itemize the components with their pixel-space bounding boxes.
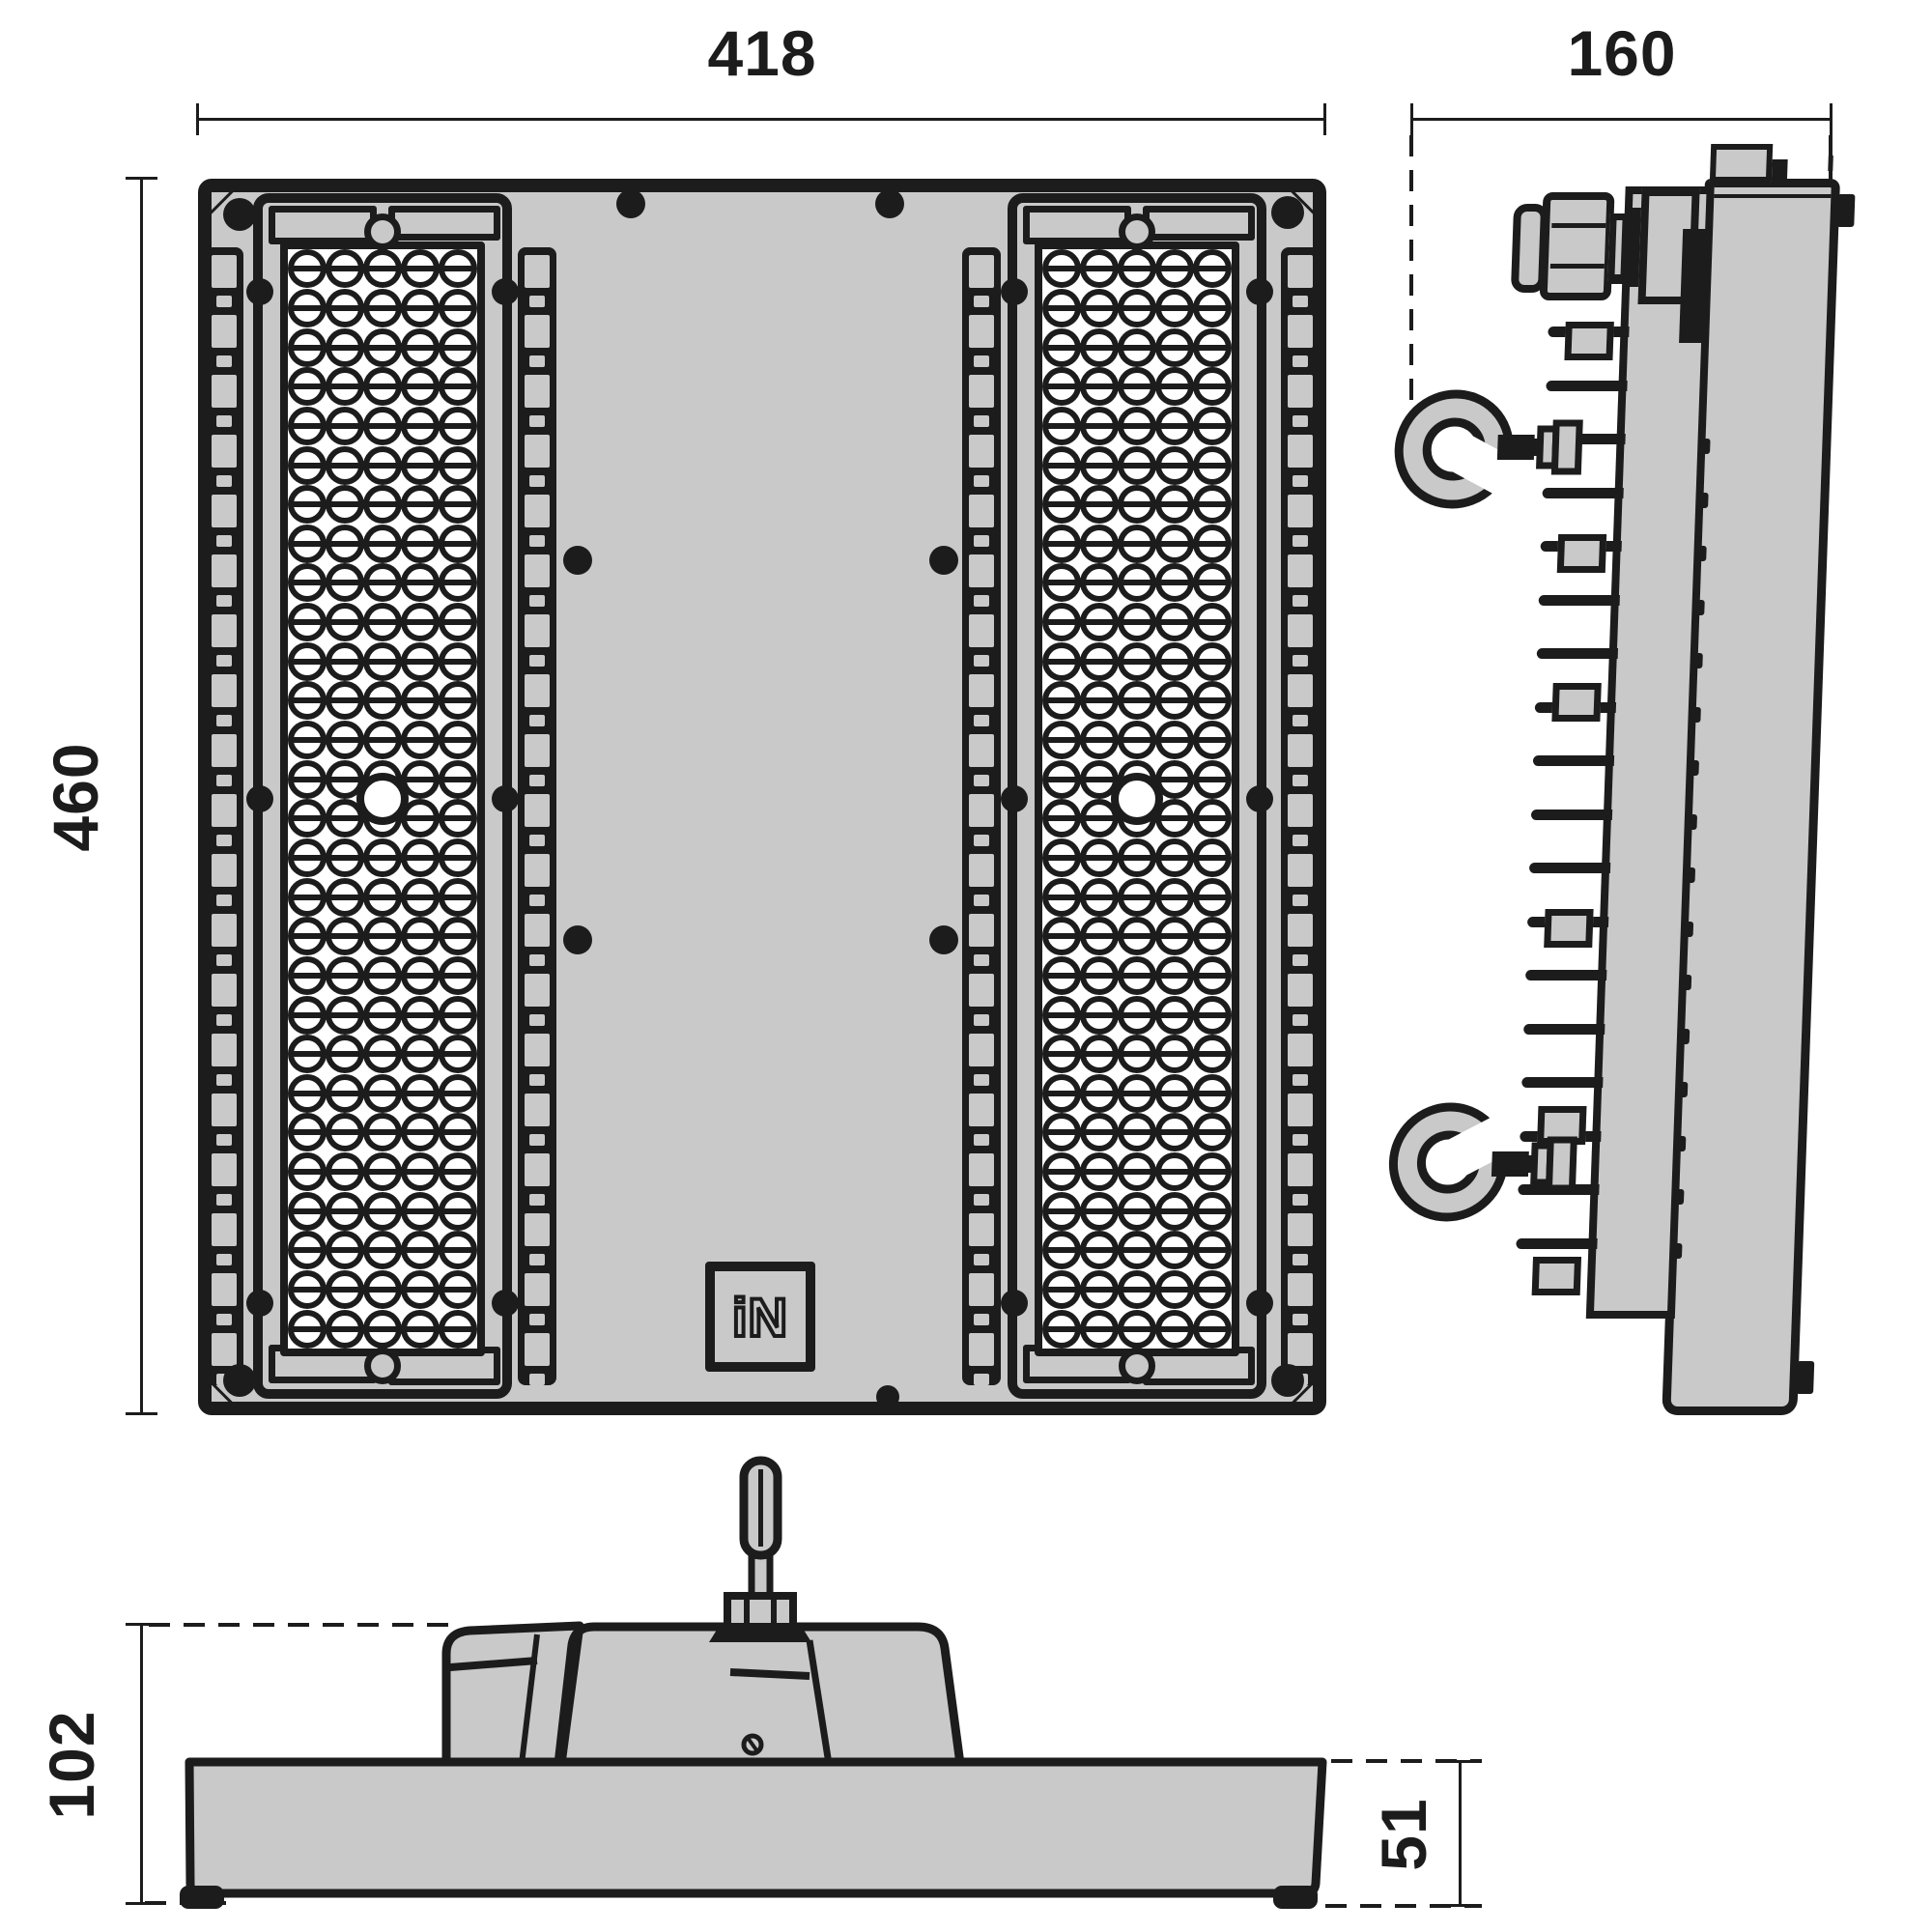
led-lens (288, 525, 327, 563)
rail-clamp-segment (1293, 1254, 1308, 1265)
heatsink-fin (1523, 1024, 1605, 1035)
led-lens-bar (1046, 463, 1077, 469)
led-lens-bar (1159, 973, 1190, 979)
led-lens (288, 1270, 327, 1309)
rail-clamp-segment (525, 854, 550, 887)
rail-clamp-segment (525, 794, 550, 827)
led-lens (1042, 1035, 1081, 1073)
rail-clamp-segment (212, 1034, 237, 1066)
rail-clamp-segment (969, 1034, 994, 1066)
slab-edge-mark (1678, 1029, 1690, 1044)
rail-clamp-segment (1293, 1314, 1308, 1325)
led-lens (288, 917, 327, 955)
led-lens-bar (292, 1169, 323, 1175)
led-lens-bar (1084, 1051, 1115, 1057)
led-lens-bar (405, 659, 436, 665)
led-lens (1080, 328, 1119, 367)
led-lens (1080, 407, 1119, 445)
led-lens-bar (405, 384, 436, 389)
led-lens-bar (1046, 1326, 1077, 1332)
led-lens-bar (1197, 580, 1228, 585)
rail-clamp-segment (974, 1194, 989, 1206)
dim-tick (196, 103, 199, 135)
led-lens-bar (1046, 345, 1077, 351)
led-lens (288, 1231, 327, 1269)
led-lens-bar (442, 697, 473, 703)
led-lens (326, 328, 364, 367)
led-lens (1155, 838, 1194, 877)
led-lens (1118, 1270, 1156, 1309)
led-lens (401, 721, 440, 759)
led-lens-bar (442, 659, 473, 665)
led-lens-bar (1159, 345, 1190, 351)
module-hole (1119, 1348, 1155, 1384)
led-lens-bar (367, 973, 398, 979)
led-lens (1118, 289, 1156, 327)
led-lens (1118, 328, 1156, 367)
led-lens (1080, 996, 1119, 1035)
led-lens-bar (442, 345, 473, 351)
dim-tick (126, 177, 157, 180)
led-lens-bar (1197, 1287, 1228, 1293)
rail-clamp-segment (969, 1333, 994, 1366)
slab-edge-mark (1692, 600, 1705, 615)
dim-line-bottom-body-height (1459, 1762, 1462, 1907)
led-lens-bar (1159, 1129, 1190, 1135)
rail-clamp-segment (1293, 895, 1308, 906)
led-lens (363, 1310, 402, 1349)
led-lens (1042, 642, 1081, 681)
slab-top-rim (1713, 194, 1831, 198)
rail-clamp-segment (525, 1273, 550, 1306)
led-lens-bar (1197, 855, 1228, 861)
led-lens-bar (329, 463, 360, 469)
led-lens-bar (1122, 697, 1152, 703)
led-lens-bar (367, 580, 398, 585)
rail-clamp-segment (525, 1153, 550, 1186)
led-lens-bar (442, 815, 473, 821)
led-lens-bar (405, 855, 436, 861)
led-lens (1155, 1310, 1194, 1349)
led-lens (1080, 446, 1119, 485)
rail-clamp-segment (1288, 255, 1313, 288)
led-lens (1118, 1192, 1156, 1231)
led-lens (1042, 917, 1081, 955)
rail-clamp-segment (525, 734, 550, 767)
led-lens-bar (367, 1287, 398, 1293)
rail-clamp-segment (1288, 554, 1313, 587)
led-lens (363, 446, 402, 485)
rail-clamp-segment (216, 1254, 232, 1265)
led-lens-bar (442, 1287, 473, 1293)
led-lens (1118, 838, 1156, 877)
led-lens (1118, 1152, 1156, 1191)
led-lens (288, 603, 327, 641)
led-lens (326, 603, 364, 641)
heatsink-bolt-block (1551, 683, 1601, 722)
led-lens-bar (1046, 1051, 1077, 1057)
led-lens-bar (1122, 1287, 1152, 1293)
led-lens-bar (1046, 1091, 1077, 1096)
rail-clamp-segment (212, 974, 237, 1007)
led-lens-bar (292, 855, 323, 861)
led-lens-bar (1159, 697, 1190, 703)
rail-clamp-segment (974, 296, 989, 307)
led-lens-bar (329, 384, 360, 389)
led-lens (326, 1231, 364, 1269)
rail-clamp-segment (212, 614, 237, 647)
dim-line-front-height (140, 179, 143, 1415)
led-lens-bar (367, 1129, 398, 1135)
led-lens-bar (1084, 933, 1115, 939)
led-lens (1080, 642, 1119, 681)
rail-clamp-segment (974, 1374, 989, 1385)
rail-clamp-segment (216, 954, 232, 966)
led-lens-bar (1197, 1247, 1228, 1253)
rail-clamp-segment (212, 734, 237, 767)
led-lens (326, 1310, 364, 1349)
led-lens-bar (1197, 697, 1228, 703)
led-lens-bar (1122, 855, 1152, 861)
rail-clamp-segment (1288, 495, 1313, 527)
rail-clamp-segment (974, 1014, 989, 1026)
led-lens-bar (405, 1051, 436, 1057)
rail-clamp-segment (212, 1273, 237, 1306)
led-lens-bar (1046, 501, 1077, 507)
led-lens-bar (367, 384, 398, 389)
led-lens (1155, 1270, 1194, 1309)
led-lens-bar (292, 659, 323, 665)
led-lens (1042, 760, 1081, 799)
rail-clamp-segment (1288, 1034, 1313, 1066)
led-lens-bar (1046, 737, 1077, 743)
rail-clamp-segment (974, 535, 989, 547)
led-lens-bar (442, 973, 473, 979)
led-lens-bar (442, 501, 473, 507)
rail-clamp-segment (216, 895, 232, 906)
cable-gland-nut (1540, 192, 1615, 300)
led-lens-bar (1084, 855, 1115, 861)
led-lens-bar (292, 580, 323, 585)
led-lens (1118, 996, 1156, 1035)
led-lens (363, 367, 402, 406)
led-lens-bar (1197, 1012, 1228, 1018)
rail-clamp-segment (216, 1134, 232, 1146)
led-lens-bar (367, 1326, 398, 1332)
led-lens-bar (292, 305, 323, 311)
led-lens (1193, 1310, 1232, 1349)
led-lens-bar (292, 1287, 323, 1293)
led-lens-bar (1122, 1129, 1152, 1135)
led-lens (326, 1270, 364, 1309)
led-lens-bar (442, 266, 473, 271)
rail-clamp-segment (969, 495, 994, 527)
led-lens-bar (442, 580, 473, 585)
led-lens (1042, 367, 1081, 406)
led-lens-bar (405, 1169, 436, 1175)
rail-clamp-segment (212, 435, 237, 468)
led-lens-bar (1046, 1169, 1077, 1175)
led-lens (1155, 603, 1194, 641)
dim-tick (1323, 103, 1326, 135)
led-lens (1042, 1310, 1081, 1349)
led-lens (1118, 446, 1156, 485)
led-lens (326, 642, 364, 681)
led-lens-bar (442, 855, 473, 861)
housing-screw (563, 925, 592, 954)
heatsink-fin (1525, 970, 1606, 980)
in-logo-text: iN (732, 1286, 788, 1349)
led-lens (439, 328, 477, 367)
slab-edge-mark (1687, 760, 1699, 776)
led-lens-bar (292, 619, 323, 625)
led-lens (1193, 328, 1232, 367)
led-lens-bar (1197, 659, 1228, 665)
rail-clamp-segment (525, 495, 550, 527)
led-lens-bar (329, 541, 360, 547)
rail-clamp-segment (212, 1333, 237, 1366)
led-lens-bar (1046, 1129, 1077, 1135)
led-lens-bar (1084, 1169, 1115, 1175)
led-lens (326, 917, 364, 955)
led-lens-bar (329, 1287, 360, 1293)
led-lens-bar (1197, 501, 1228, 507)
led-lens (326, 956, 364, 995)
led-lens-bar (1159, 541, 1190, 547)
led-lens (363, 1035, 402, 1073)
led-lens-bar (1122, 1208, 1152, 1214)
led-lens-bar (367, 463, 398, 469)
rail-clamp-segment (974, 655, 989, 667)
rail-clamp-segment (216, 1074, 232, 1086)
led-lens (401, 407, 440, 445)
mounting-bracket (446, 1626, 960, 1764)
led-lens-bar (405, 697, 436, 703)
led-lens (1155, 1074, 1194, 1113)
rail-clamp-segment (529, 1194, 545, 1206)
led-lens (288, 1074, 327, 1113)
led-lens-bar (442, 619, 473, 625)
rail-clamp-segment (529, 1074, 545, 1086)
led-lens (1042, 603, 1081, 641)
led-lens-bar (1197, 541, 1228, 547)
led-lens-bar (405, 619, 436, 625)
led-lens (1193, 1074, 1232, 1113)
led-lens (1193, 878, 1232, 917)
dim-line-front-width (198, 118, 1326, 121)
led-lens (401, 289, 440, 327)
led-lens-bar (442, 1129, 473, 1135)
cable-gland-facet (1551, 223, 1605, 228)
rail-clamp-segment (525, 554, 550, 587)
led-lens (1118, 642, 1156, 681)
led-lens-bar (329, 697, 360, 703)
led-lens (439, 525, 477, 563)
rail-clamp-segment (529, 715, 545, 726)
dim-label-side-depth: 160 (1567, 21, 1676, 85)
rail-clamp-segment (969, 1094, 994, 1126)
led-lens-bar (1197, 895, 1228, 900)
led-lens-bar (367, 659, 398, 665)
led-lens (326, 407, 364, 445)
clamp-rail (205, 247, 243, 1385)
rail-clamp-segment (212, 674, 237, 707)
led-lens-bar (367, 345, 398, 351)
bottom-body (189, 1762, 1322, 1893)
eyebolt (709, 1461, 811, 1642)
led-lens (288, 721, 327, 759)
rail-clamp-segment (1288, 315, 1313, 348)
led-lens-bar (1122, 1169, 1152, 1175)
led-lens (288, 367, 327, 406)
led-lens-bar (405, 777, 436, 782)
rail-clamp-segment (525, 1213, 550, 1246)
module-edge-screw (492, 785, 519, 812)
led-lens (1042, 996, 1081, 1035)
led-lens (439, 1192, 477, 1231)
led-lens-bar (1046, 1208, 1077, 1214)
rail-clamp-segment (212, 554, 237, 587)
slab-edge-mark (1672, 1189, 1685, 1205)
technical-drawing-canvas: 418 160 460 iN (0, 0, 1932, 1932)
led-lens (1042, 1270, 1081, 1309)
led-lens-bar (405, 1208, 436, 1214)
led-lens (1042, 681, 1081, 720)
led-lens-bar (1046, 1287, 1077, 1293)
led-lens-bar (329, 1208, 360, 1214)
led-lens (401, 878, 440, 917)
rail-clamp-segment (1293, 595, 1308, 607)
rail-clamp-segment (969, 674, 994, 707)
rail-clamp-segment (1293, 655, 1308, 667)
module-hole (1119, 213, 1155, 250)
led-lens-bar (329, 1326, 360, 1332)
rail-clamp-segment (525, 974, 550, 1007)
led-lens (1193, 760, 1232, 799)
top-mount-step (1772, 159, 1788, 185)
led-lens (1193, 1192, 1232, 1231)
heatsink-fin (1531, 810, 1612, 820)
led-lens-bar (1084, 345, 1115, 351)
led-lens-bar (329, 855, 360, 861)
led-lens (1080, 681, 1119, 720)
led-lens-bar (367, 1012, 398, 1018)
led-lens (326, 289, 364, 327)
module-hole (364, 213, 401, 250)
led-lens-bar (405, 895, 436, 900)
rail-clamp-segment (969, 554, 994, 587)
led-lens-bar (405, 501, 436, 507)
module-top-panel (269, 206, 377, 244)
led-lens (363, 642, 402, 681)
rail-clamp-segment (1288, 435, 1313, 468)
rail-clamp-segment (216, 535, 232, 547)
rail-clamp-segment (969, 375, 994, 408)
rail-clamp-segment (1288, 734, 1313, 767)
led-lens-bar (329, 973, 360, 979)
rail-clamp-segment (1293, 355, 1308, 367)
rail-clamp-segment (974, 1314, 989, 1325)
led-lens (1155, 1035, 1194, 1073)
led-lens-bar (292, 1129, 323, 1135)
led-lens (1042, 956, 1081, 995)
led-lens (363, 721, 402, 759)
slab-tab-top (1836, 194, 1855, 227)
led-lens (288, 328, 327, 367)
slab-edge-mark (1680, 975, 1692, 990)
led-lens (1080, 1270, 1119, 1309)
slab-edge-mark (1690, 653, 1703, 668)
led-lens (1193, 446, 1232, 485)
extension-line-dashed (1325, 1904, 1482, 1908)
led-lens (401, 1310, 440, 1349)
led-lens-bar (1159, 501, 1190, 507)
led-lens-bar (1046, 659, 1077, 665)
led-lens (326, 1035, 364, 1073)
module-top-panel (1023, 206, 1131, 244)
rail-clamp-segment (525, 1094, 550, 1126)
led-lens-bar (329, 305, 360, 311)
led-lens-bar (1084, 659, 1115, 665)
rail-clamp-segment (974, 1254, 989, 1265)
housing-screw (223, 198, 256, 231)
rail-clamp-segment (969, 794, 994, 827)
led-lens-bar (1046, 815, 1077, 821)
rail-clamp-segment (969, 614, 994, 647)
heatsink-bolt-block (1564, 322, 1613, 360)
led-lens (326, 1074, 364, 1113)
heatsink-bolt-block (1532, 1257, 1581, 1295)
led-lens-bar (405, 580, 436, 585)
led-lens (401, 642, 440, 681)
led-lens (288, 878, 327, 917)
rail-clamp-segment (212, 1094, 237, 1126)
led-lens-bar (1159, 659, 1190, 665)
led-lens (326, 485, 364, 524)
led-lens-bar (1122, 266, 1152, 271)
rail-clamp-segment (1288, 674, 1313, 707)
led-lens-bar (1122, 895, 1152, 900)
led-lens-bar (405, 345, 436, 351)
led-lens (401, 956, 440, 995)
led-lens-bar (1159, 737, 1190, 743)
led-lens (401, 328, 440, 367)
led-lens-bar (1159, 1091, 1190, 1096)
led-lens-bar (1084, 1287, 1115, 1293)
module-center-hole (1111, 773, 1163, 825)
module-top-panel (388, 206, 500, 241)
led-lens-bar (1046, 266, 1077, 271)
rail-clamp-segment (1288, 1094, 1313, 1126)
module-edge-screw (1001, 278, 1028, 305)
module-hole (364, 1348, 401, 1384)
led-lens (1042, 1074, 1081, 1113)
rail-clamp-segment (529, 954, 545, 966)
cable-gland-facet (1550, 264, 1605, 269)
led-lens (401, 485, 440, 524)
led-lens-bar (442, 541, 473, 547)
rail-clamp-segment (1288, 1273, 1313, 1306)
led-lens (1080, 289, 1119, 327)
led-lens-bar (1159, 305, 1190, 311)
led-lens (439, 996, 477, 1035)
led-lens (1042, 249, 1081, 288)
rail-clamp-segment (529, 415, 545, 427)
led-lens-bar (329, 266, 360, 271)
led-lens-bar (1122, 737, 1152, 743)
rail-clamp-segment (969, 255, 994, 288)
led-lens-bar (1122, 1091, 1152, 1096)
